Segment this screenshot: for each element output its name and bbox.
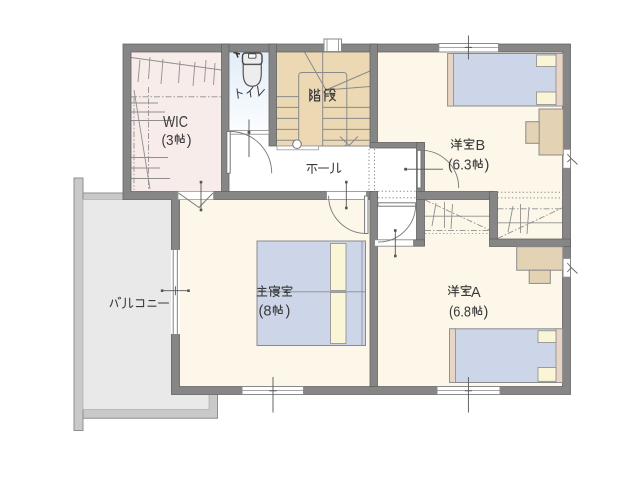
svg-text:(6.3: (6.3 (448, 158, 472, 174)
svg-text:): ) (187, 133, 192, 149)
svg-text:A: A (471, 285, 481, 301)
svg-text:WIC: WIC (163, 114, 188, 131)
svg-text:(8: (8 (259, 304, 272, 320)
svg-text:): ) (484, 305, 489, 321)
svg-text:B: B (476, 138, 486, 154)
svg-text:(3: (3 (162, 133, 174, 149)
svg-text:): ) (286, 304, 291, 320)
svg-text:): ) (485, 158, 490, 174)
svg-text:(6.8: (6.8 (449, 305, 471, 321)
